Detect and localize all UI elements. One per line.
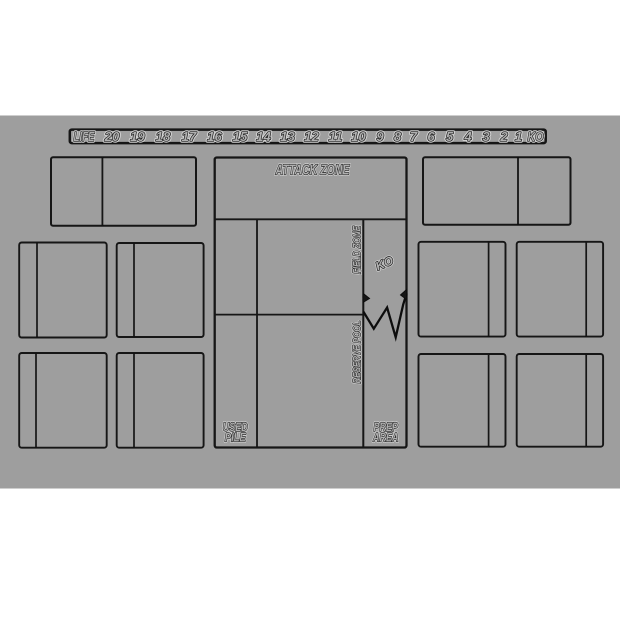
- svg-text:AREA: AREA: [372, 430, 398, 444]
- svg-text:2: 2: [499, 129, 508, 144]
- svg-text:16: 16: [207, 129, 222, 144]
- svg-text:11: 11: [329, 129, 343, 144]
- svg-text:14: 14: [256, 129, 271, 144]
- svg-text:KO: KO: [528, 130, 544, 144]
- svg-text:8: 8: [394, 129, 402, 144]
- svg-text:5: 5: [446, 129, 454, 144]
- svg-text:15: 15: [233, 129, 248, 144]
- svg-text:ATTACK ZONE: ATTACK ZONE: [275, 162, 351, 178]
- svg-text:LIFE: LIFE: [74, 130, 96, 144]
- svg-text:7: 7: [410, 129, 418, 144]
- svg-text:10: 10: [351, 129, 366, 144]
- svg-text:20: 20: [104, 129, 120, 144]
- svg-text:PILE: PILE: [225, 430, 247, 444]
- svg-text:1: 1: [515, 129, 522, 144]
- svg-text:6: 6: [427, 129, 435, 144]
- svg-text:18: 18: [156, 129, 171, 144]
- svg-text:FIELD ZONE: FIELD ZONE: [352, 225, 364, 274]
- svg-text:13: 13: [280, 129, 295, 144]
- svg-text:9: 9: [376, 129, 384, 144]
- svg-text:19: 19: [130, 129, 145, 144]
- svg-text:4: 4: [463, 129, 472, 144]
- svg-text:RESERVE POOL: RESERVE POOL: [352, 321, 364, 384]
- svg-text:3: 3: [482, 129, 490, 144]
- svg-text:12: 12: [304, 129, 319, 144]
- svg-text:17: 17: [182, 129, 197, 144]
